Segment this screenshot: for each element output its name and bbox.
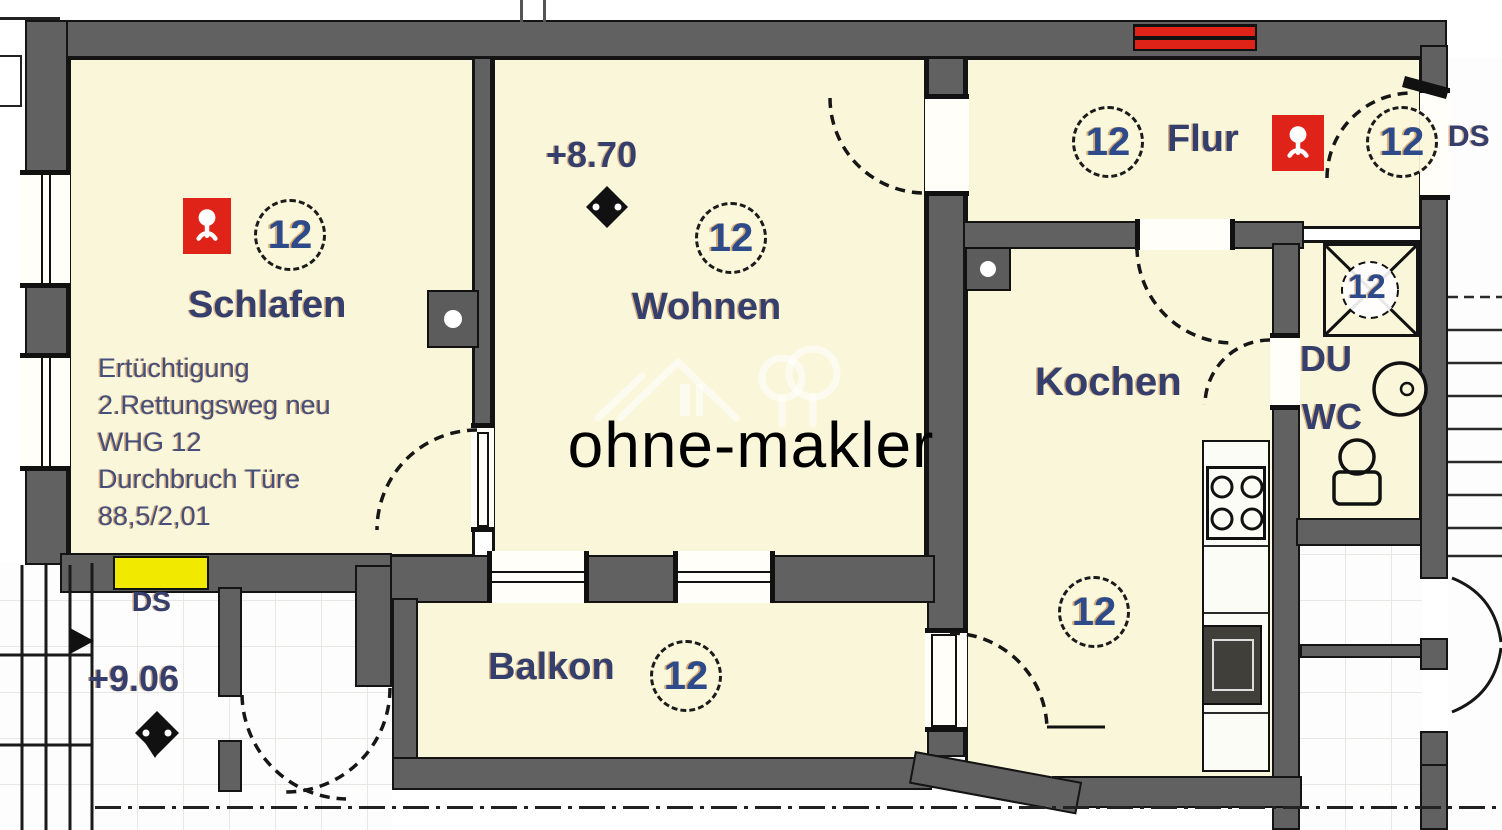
watermark-text: ohne-makler (558, 408, 944, 482)
room-number-circle-flur: 12 (1072, 106, 1144, 178)
counter-divider-3 (1204, 712, 1268, 714)
room-label-wc: WC (1302, 396, 1362, 438)
wall-right-post-2 (1420, 731, 1448, 766)
stairwell-left-area (0, 563, 392, 830)
wall-wohnen-balkon (390, 555, 935, 603)
room-label-flur: Flur (1167, 118, 1239, 161)
wall-stair-post-b (218, 740, 242, 792)
wall-duwc-bottom (1296, 518, 1424, 546)
room-label-balkon: Balkon (488, 646, 615, 689)
room-label-schlafen: Schlafen (188, 284, 346, 327)
stove (1206, 466, 1266, 540)
top-tick-1 (520, 0, 523, 22)
wall-flur-kochen (963, 221, 1304, 249)
renovation-note: Ertüchtigung 2.Rettungsweg neu WHG 12 Du… (98, 350, 331, 535)
room-number-circle-kochen: 12 (1058, 576, 1130, 648)
ds-label-left: DS (132, 586, 171, 618)
neighbor-window-mark (0, 55, 22, 107)
adjacent-rooms-area (1300, 546, 1422, 830)
elevation-stair: +9.06 (88, 658, 179, 700)
room-number-circle-balkon: 12 (650, 640, 722, 712)
door-kochen-balkon-leaf (931, 634, 957, 727)
wall-balkon-bottom (392, 757, 932, 790)
window-balkon-1 (487, 551, 589, 603)
wall-right-stair (1420, 195, 1448, 579)
room-label-wohnen: Wohnen (632, 286, 781, 329)
highlight-new-opening (113, 556, 209, 590)
ds-label-right: DS (1448, 120, 1490, 154)
wall-exterior-left (25, 20, 68, 565)
window-schlafen-1 (20, 170, 70, 288)
window-schlafen-2 (20, 353, 70, 471)
wall-box-schlafen (427, 290, 479, 348)
section-line (95, 806, 1502, 809)
room-label-kochen: Kochen (1035, 360, 1182, 405)
wall-box-kochen (965, 247, 1011, 291)
note-line-1: Ertüchtigung (98, 350, 331, 387)
note-line-5: 88,5/2,01 (98, 498, 331, 535)
room-label-du: DU (1300, 338, 1352, 380)
window-balkon-2 (673, 551, 775, 603)
kitchen-sink (1202, 625, 1262, 705)
wall-adjacent-divider (1300, 644, 1422, 658)
top-tick-2 (543, 0, 546, 22)
top-edge-line (0, 17, 60, 20)
door-duwc-opening (1270, 333, 1300, 410)
wall-right-post-1 (1420, 638, 1448, 670)
elevation-wohnen: +8.70 (546, 134, 637, 176)
room-number-circle-entry: 12 (1366, 106, 1438, 178)
door-flur-kochen-opening (1135, 219, 1235, 250)
room-number-circle-schlafen: 12 (254, 199, 326, 271)
shaft-number: 12 (1348, 268, 1386, 307)
wall-right-above-entry (1420, 45, 1448, 91)
door-schlafen-leaf (477, 432, 489, 527)
wall-stair-post-c (355, 565, 392, 687)
smoke-detector-icon-schlafen (183, 198, 231, 254)
note-line-4: Durchbruch Türe (98, 461, 331, 498)
note-line-2: 2.Rettungsweg neu (98, 387, 331, 424)
stairwell-right-area (1448, 57, 1502, 830)
wall-schlafen-wohnen (473, 57, 492, 429)
wall-stair-post-a (218, 587, 242, 697)
renovation-marker (1133, 24, 1257, 51)
room-number-circle-wohnen: 12 (695, 202, 767, 274)
door-wohnen-flur-opening (925, 94, 969, 196)
floor-plan: 12 12 12 12 12 12 12 Schlafen Wohnen Flu… (0, 0, 1502, 830)
counter-divider-2 (1204, 612, 1268, 614)
wall-kochen-bottom (1052, 776, 1302, 808)
note-line-3: WHG 12 (98, 424, 331, 461)
smoke-detector-icon-flur (1272, 115, 1324, 171)
counter-divider-1 (1204, 545, 1268, 547)
wall-right-low (1420, 764, 1448, 830)
